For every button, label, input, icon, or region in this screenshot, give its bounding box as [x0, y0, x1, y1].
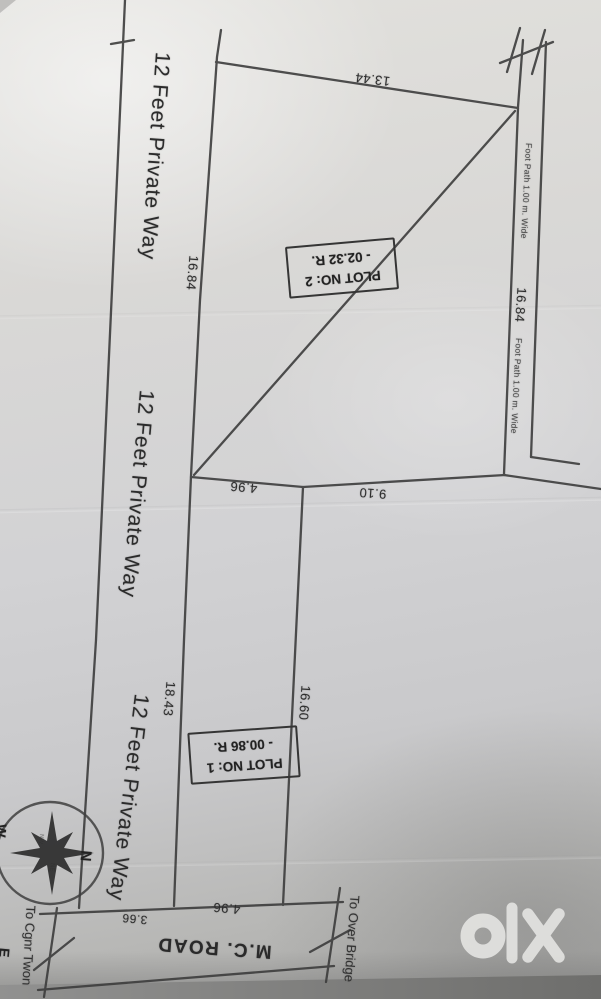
compass-north-label: N [77, 850, 95, 862]
footpath-bottom-line [504, 475, 601, 489]
mid-right-dimension: 9.10 [359, 485, 387, 502]
compass-west-label: W [0, 823, 10, 838]
survey-linework [0, 0, 601, 999]
road-top-edge [40, 902, 343, 914]
compass-nw-label: NW [37, 834, 44, 844]
private-way-left-line [79, 0, 125, 908]
plot2-west-dimension: 16.84 [183, 255, 201, 291]
road-frontage-dimension: 4.96 [212, 900, 241, 917]
olx-watermark [468, 908, 560, 958]
plot1-east-dimension: 16.60 [296, 685, 313, 721]
olx-o [468, 921, 499, 952]
footpath-right-line [531, 42, 546, 457]
break-mark [507, 28, 520, 72]
plot1-label-box: PLOT NO: 1 - 00.86 R. [187, 725, 300, 785]
road-bottom-edge [38, 966, 334, 990]
footpath-elbow-line [531, 457, 579, 464]
way-width-dimension: 3.66 [121, 911, 147, 927]
footpath-left-line [518, 40, 523, 107]
plot1-west-dimension: 18.43 [160, 681, 178, 717]
plot2-label-box: PLOT NO: 2 - 02.32 R. [285, 237, 399, 298]
break-mark [532, 30, 545, 74]
plot-plan-photo: 12 Feet Private Way 12 Feet Private Way … [0, 0, 601, 999]
compass-ne-label: NE [48, 863, 55, 872]
plot1-area: - 00.86 R. [213, 733, 274, 757]
mid-left-dimension: 4.96 [229, 479, 258, 496]
break-mark [34, 938, 74, 970]
plot2-east-dimension: 16.84 [512, 287, 529, 323]
compass-east-label: E [0, 947, 13, 958]
